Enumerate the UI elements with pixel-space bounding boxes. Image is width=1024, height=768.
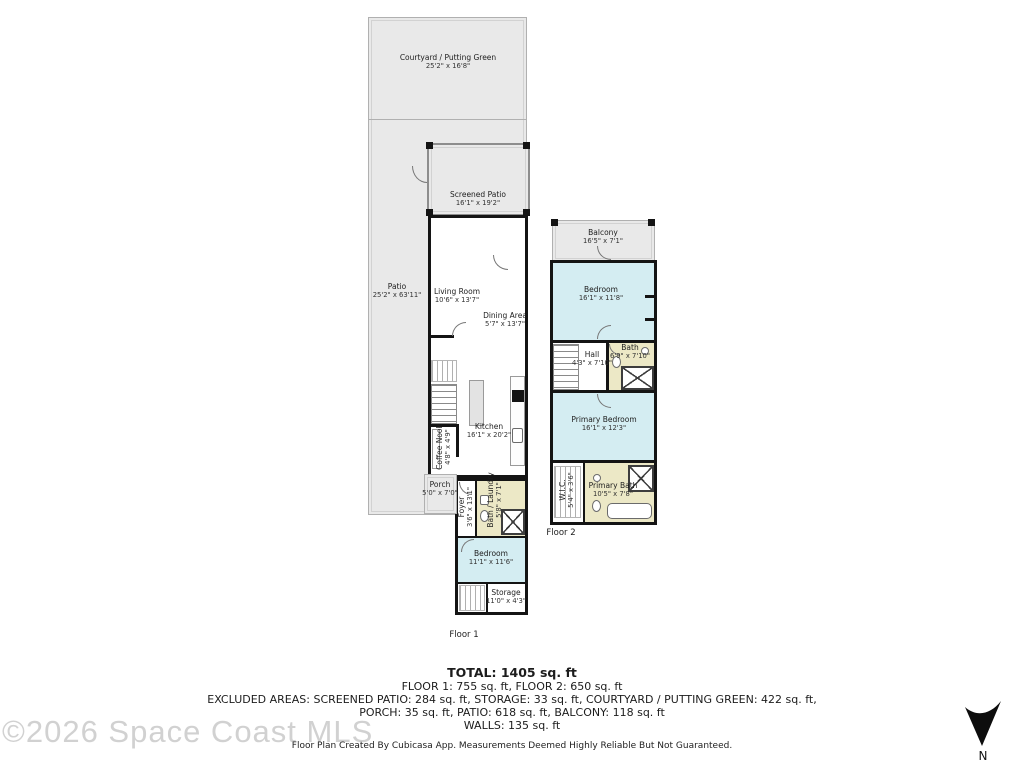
stairs-floor1	[431, 384, 457, 424]
closet-shelves	[431, 360, 457, 382]
summary-total: TOTAL: 1405 sq. ft	[0, 666, 1024, 680]
interior-wall	[458, 582, 525, 584]
bathtub-icon	[607, 503, 652, 519]
north-arrow-icon	[963, 700, 1003, 748]
bedroom1-label: Bedroom 11'1" x 11'6"	[469, 549, 513, 567]
compass: N	[962, 700, 1004, 762]
coffee-nook-wall	[456, 427, 459, 457]
dining-area-label: Dining Area 5'7" x 13'7"	[483, 311, 527, 329]
stove-icon	[512, 390, 524, 402]
foyer-label: Foyer 3'6" x 13'1"	[457, 487, 475, 527]
summary-excluded-line1: EXCLUDED AREAS: SCREENED PATIO: 284 sq. …	[0, 693, 1024, 706]
summary-excluded-line2: PORCH: 35 sq. ft, PATIO: 618 sq. ft, BAL…	[0, 706, 1024, 719]
patio-label: Patio 25'2" x 63'11"	[373, 282, 422, 300]
washer-dryer-icon	[501, 509, 525, 535]
screened-patio-post	[523, 142, 530, 149]
kitchen-label: Kitchen 16'1" x 20'2"	[467, 422, 511, 440]
toilet-icon	[592, 500, 601, 512]
closet-shelves	[459, 585, 485, 611]
screened-patio-label: Screened Patio 16'1" x 19'2"	[450, 190, 506, 208]
primary-bedroom-label: Primary Bedroom 16'1" x 12'3"	[571, 415, 636, 433]
screened-patio-post	[426, 142, 433, 149]
summary-walls: WALLS: 135 sq. ft	[0, 719, 1024, 732]
primary-bath-label: Primary Bath 10'5" x 7'8"	[589, 481, 638, 499]
balcony-post	[551, 219, 558, 226]
shower-icon	[621, 366, 654, 390]
courtyard-divider-line	[369, 119, 526, 120]
area-summary: TOTAL: 1405 sq. ft FLOOR 1: 755 sq. ft, …	[0, 666, 1024, 732]
wic-bath-wall	[583, 463, 585, 522]
coffee-nook-label: Coffee Nook 4'8" x 4'9"	[435, 424, 453, 470]
wic-label: W.I.C. 5'4" x 3'6"	[558, 472, 576, 508]
kitchen-sink-icon	[512, 428, 523, 443]
bedroom2-label: Bedroom 16'1" x 11'8"	[579, 285, 623, 303]
living-room-label: Living Room 10'6" x 13'7"	[434, 287, 480, 305]
floor-plan-page: Courtyard / Putting Green 25'2" x 16'8" …	[0, 0, 1024, 768]
balcony-label: Balcony 16'5" x 7'1"	[583, 228, 623, 246]
bath-laundry-label: Bath / Laundry 5'8" x 7'1"	[486, 472, 504, 527]
foyer-bath-wall	[475, 481, 477, 536]
balcony-post	[648, 219, 655, 226]
closet-stub-wall	[645, 318, 654, 321]
interior-wall	[550, 460, 657, 463]
kitchen-island	[469, 380, 484, 426]
interior-wall	[458, 536, 525, 538]
screened-patio-post	[523, 209, 530, 216]
hall-label: Hall 4'3" x 7'10"	[572, 350, 612, 368]
storage-label: Storage 11'0" x 4'3"	[486, 588, 526, 606]
floor2-tag: Floor 2	[546, 528, 575, 538]
bath2-label: Bath 6'9" x 7'10"	[610, 343, 650, 361]
floor1-tag: Floor 1	[449, 630, 478, 640]
screened-patio-post	[426, 209, 433, 216]
courtyard-label: Courtyard / Putting Green 25'2" x 16'8"	[400, 53, 496, 71]
north-label: N	[962, 749, 1004, 763]
disclaimer-text: Floor Plan Created By Cubicasa App. Meas…	[0, 741, 1024, 751]
interior-wall	[431, 335, 454, 338]
summary-floors: FLOOR 1: 755 sq. ft, FLOOR 2: 650 sq. ft	[0, 680, 1024, 693]
porch-label: Porch 5'0" x 7'0"	[422, 480, 458, 498]
closet-stub-wall	[645, 295, 654, 298]
interior-wall	[550, 390, 657, 393]
